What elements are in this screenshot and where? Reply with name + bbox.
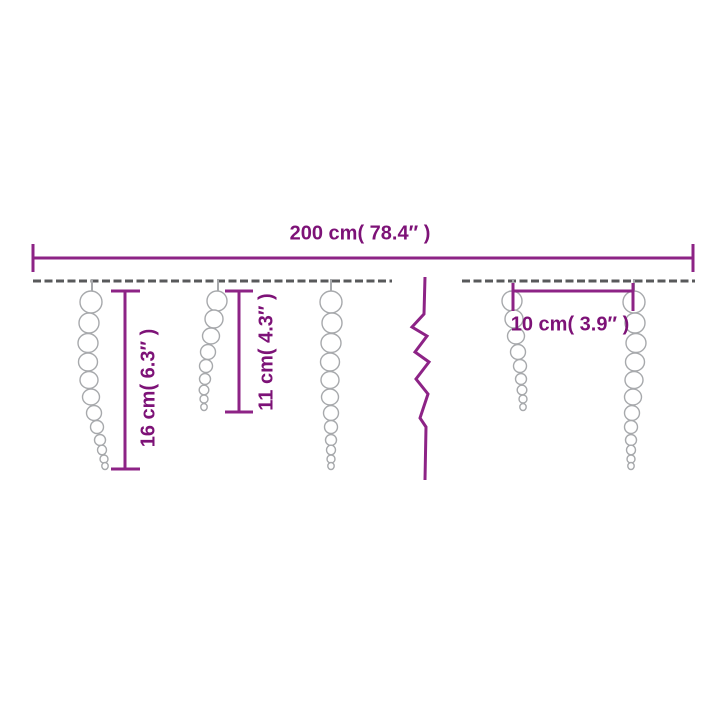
diagram-graphics [0, 0, 720, 720]
icicle-segment [91, 421, 104, 434]
icicle-segment [517, 385, 527, 395]
icicle-light-3 [320, 279, 342, 470]
icicle-segment [200, 395, 208, 403]
icicle-segment [199, 385, 209, 395]
icicle-segment [626, 353, 645, 371]
icicle-segment [201, 345, 216, 360]
icicle-segment [325, 421, 338, 434]
break-zigzag-line [412, 277, 429, 480]
dimension-short-icicle [225, 291, 253, 412]
icicle-segment [79, 353, 98, 371]
icicle-segment [320, 291, 342, 313]
icicle-segment [80, 372, 98, 389]
icicle-segment [328, 463, 334, 470]
icicle-segment [87, 406, 102, 421]
icicle-segment [207, 291, 227, 311]
icicle-segment [625, 406, 640, 421]
icicle-segment [205, 310, 223, 328]
icicle-segment [519, 395, 527, 403]
icicle-segment [625, 389, 642, 405]
icicle-segment [200, 374, 211, 385]
icicle-segment [321, 353, 340, 371]
icicle-segment [80, 291, 102, 313]
icicle-segment [78, 334, 98, 353]
icicle-segment [79, 313, 99, 333]
icicle-segment [625, 421, 638, 434]
icicle-segment [98, 445, 107, 455]
icicle-segment [200, 360, 213, 373]
icicle-segment [626, 435, 637, 446]
icicle-segment [321, 372, 339, 389]
icicle-segment [628, 463, 634, 470]
icicle-segment [322, 389, 339, 405]
dimension-spacing [513, 283, 633, 311]
icicle-segment [102, 463, 108, 470]
icicle-segment [83, 389, 100, 405]
dimension-label-total-width: 200 cm( 78.4″ ) [290, 223, 431, 246]
icicle-light-2 [199, 279, 227, 411]
dimension-label-short-icicle: 11 cm( 4.3″ ) [256, 293, 279, 410]
icicle-segment [100, 455, 108, 463]
icicle-segment [520, 404, 526, 411]
icicle-segment [322, 313, 342, 333]
icicle-segment [511, 345, 526, 360]
icicle-segment [516, 374, 527, 385]
icicle-segment [321, 334, 341, 353]
icicle-segment [326, 435, 337, 446]
dimension-label-spacing: 10 cm( 3.9″ ) [511, 314, 630, 337]
dimension-label-long-icicle: 16 cm( 6.3″ ) [138, 329, 161, 448]
icicle-segment [201, 404, 207, 411]
icicle-segment [625, 372, 643, 389]
icicle-segment [324, 406, 339, 421]
icicle-light-1 [78, 279, 108, 470]
icicle-segment [327, 445, 336, 455]
dimension-long-icicle [111, 291, 140, 469]
icicle-segment [514, 360, 527, 373]
icicle-segment [95, 435, 106, 446]
icicle-segment [203, 328, 220, 344]
diagram-canvas: 200 cm( 78.4″ ) 16 cm( 6.3″ ) 11 cm( 4.3… [0, 0, 720, 720]
dimension-total-width [33, 244, 694, 272]
icicle-segment [627, 445, 636, 455]
